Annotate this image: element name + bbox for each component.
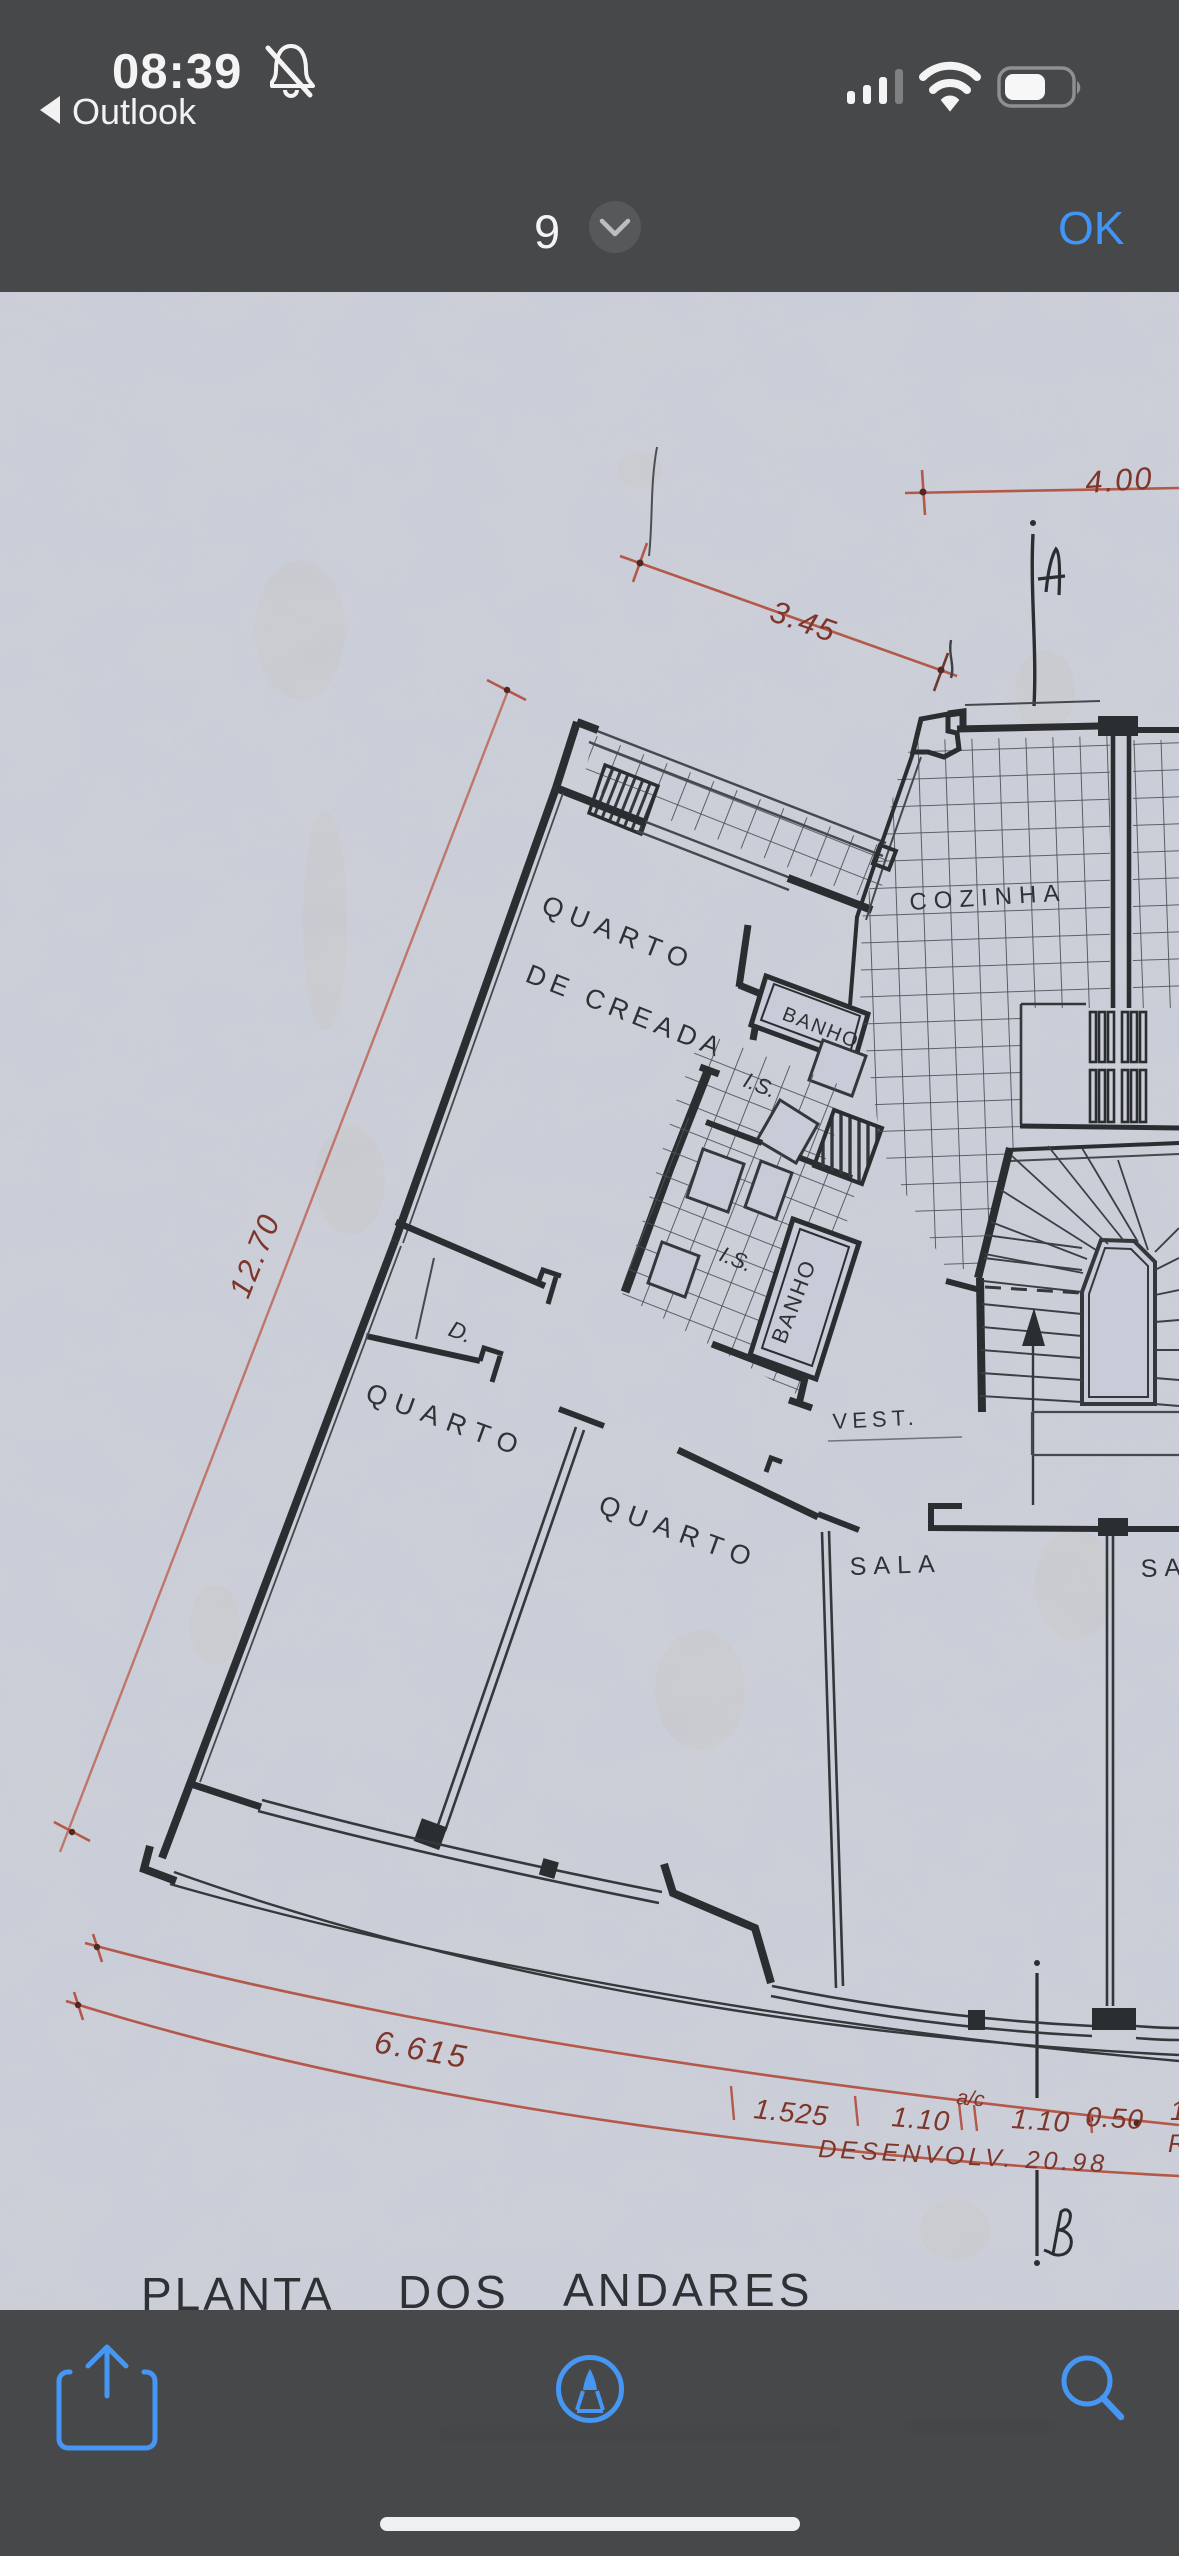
svg-text:a/c: a/c xyxy=(956,2086,986,2111)
svg-text:SALA: SALA xyxy=(849,1550,942,1581)
svg-text:R: R xyxy=(1168,2130,1179,2158)
svg-text:1: 1 xyxy=(1170,2095,1179,2126)
svg-text:4.00: 4.00 xyxy=(1084,460,1155,500)
svg-text:1.10: 1.10 xyxy=(1011,2103,1072,2138)
svg-text:1.10: 1.10 xyxy=(890,2101,951,2137)
svg-text:SALA: SALA xyxy=(1140,1552,1179,1583)
svg-text:OK: OK xyxy=(1058,202,1125,254)
svg-text:9: 9 xyxy=(534,205,560,258)
svg-text:ANDARES: ANDARES xyxy=(563,2264,813,2316)
svg-text:VEST.: VEST. xyxy=(832,1405,919,1434)
svg-text:0.50: 0.50 xyxy=(1085,2101,1145,2135)
svg-text:Outlook: Outlook xyxy=(72,91,197,132)
